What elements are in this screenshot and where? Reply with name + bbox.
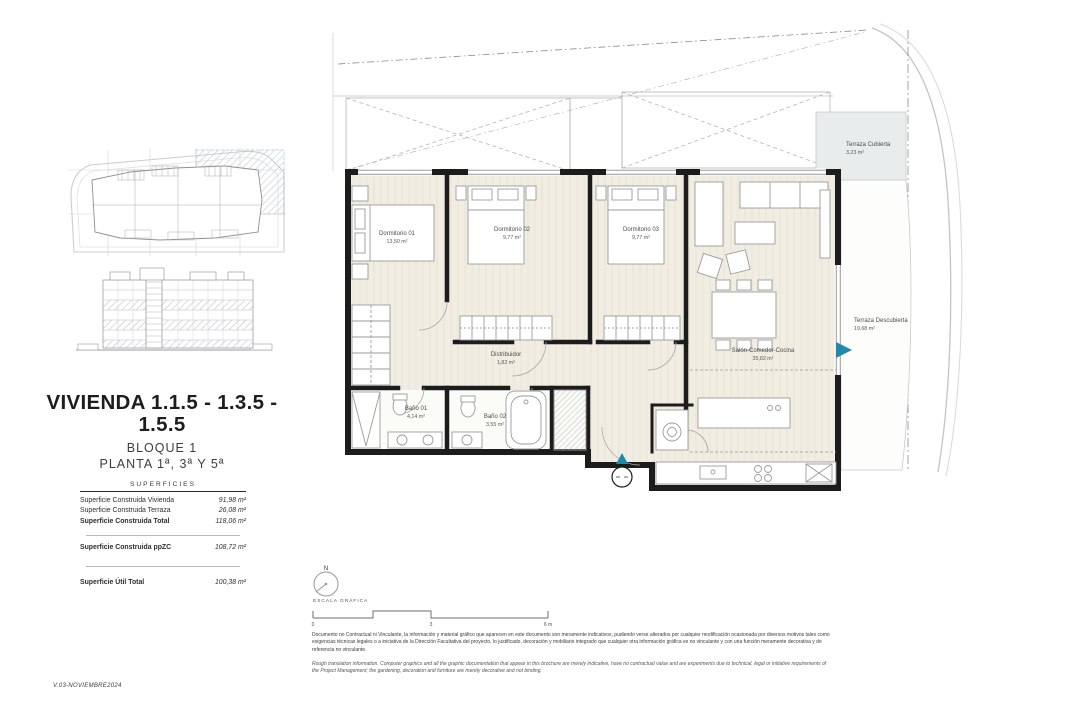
room-area-distribuidor: 1,82 m² bbox=[497, 360, 515, 366]
plan-sheet: VIVIENDA 1.1.5 - 1.3.5 - 1.5.5 BLOQUE 1 … bbox=[0, 0, 1080, 720]
floors-subtitle: PLANTA 1ª, 3ª Y 5ª bbox=[46, 457, 278, 473]
room-area-bano-01: 4,14 m² bbox=[407, 414, 425, 420]
row-label: Superficie Construida Total bbox=[80, 517, 169, 527]
room-area-dormitorio-02: 9,77 m² bbox=[503, 235, 521, 241]
room-area-bano-02: 3,55 m² bbox=[486, 422, 504, 428]
version-code: V.03-NOVIEMBRE2024 bbox=[53, 683, 122, 689]
legal-disclaimer: Documento no Contractual ni Vinculante, … bbox=[312, 632, 834, 675]
row-value: 100,38 m² bbox=[215, 578, 246, 588]
block-subtitle: BLOQUE 1 bbox=[46, 441, 278, 457]
scale-tick-6m: 6 m bbox=[544, 622, 552, 628]
floor-plan bbox=[348, 169, 852, 489]
row-value: 91,98 m² bbox=[219, 496, 246, 506]
room-label-dormitorio-01: Dormitorio 01 bbox=[379, 231, 416, 237]
page-title: VIVIENDA 1.1.5 - 1.3.5 - 1.5.5 bbox=[46, 392, 278, 436]
room-area-salon-comedor-cocina: 35,82 m² bbox=[753, 356, 774, 362]
room-label-bano-01: Baño 01 bbox=[405, 406, 428, 412]
row-label: Superficie Construida ppZC bbox=[80, 543, 171, 553]
table-separator bbox=[86, 566, 240, 567]
scale-tick-0: 0 bbox=[312, 622, 315, 628]
disclaimer-english: Rough translation information. Computer … bbox=[312, 661, 834, 676]
drawing-canvas: Dormitorio 01 13,50 m² Dormitorio 02 9,7… bbox=[0, 0, 1080, 720]
north-label: N bbox=[324, 565, 329, 572]
table-row: Superficie Construida Vivienda 91,98 m² bbox=[80, 496, 246, 506]
room-label-distribuidor: Distribuidor bbox=[491, 352, 521, 358]
room-label-salon-comedor-cocina: Salón-Comedor-Cocina bbox=[732, 348, 795, 354]
disclaimer-spanish: Documento no Contractual ni Vinculante, … bbox=[312, 632, 834, 654]
table-row: Superficie Útil Total 100,38 m² bbox=[80, 578, 246, 588]
title-block: VIVIENDA 1.1.5 - 1.3.5 - 1.5.5 BLOQUE 1 … bbox=[46, 392, 278, 473]
upper-floor-overhang bbox=[346, 92, 830, 171]
row-label: Superficie Útil Total bbox=[80, 578, 144, 588]
room-area-terraza-descubierta: 19,68 m² bbox=[854, 326, 875, 332]
room-label-dormitorio-02: Dormitorio 02 bbox=[494, 227, 531, 233]
superficies-heading: SUPERFICIES bbox=[80, 481, 246, 488]
room-area-dormitorio-01: 13,50 m² bbox=[387, 239, 408, 245]
room-label-terraza-descubierta: Terraza Descubierta bbox=[854, 318, 908, 324]
building-elevation bbox=[76, 268, 272, 350]
scale-tick-3: 3 bbox=[430, 622, 433, 628]
scale-bar-label: ESCALA GRÁFICA bbox=[313, 597, 368, 604]
terrace-glass-door bbox=[835, 265, 842, 375]
superficies-table: SUPERFICIES Superficie Construida Vivien… bbox=[80, 481, 246, 589]
room-label-terraza-cubierta: Terraza Cubierta bbox=[846, 142, 891, 148]
room-area-terraza-cubierta: 3,23 m² bbox=[846, 150, 864, 156]
room-area-dormitorio-03: 9,77 m² bbox=[632, 235, 650, 241]
scale-bar: ESCALA GRÁFICA 0 3 6 m bbox=[312, 597, 553, 628]
table-rule bbox=[80, 491, 246, 492]
row-value: 118,06 m² bbox=[215, 517, 246, 527]
row-value: 108,72 m² bbox=[215, 543, 246, 553]
north-compass: N bbox=[314, 565, 338, 596]
table-row: Superficie Construida Total 118,06 m² bbox=[80, 517, 246, 527]
site-plan-thumbnail bbox=[68, 148, 286, 256]
terraza-descubierta-area bbox=[841, 180, 911, 470]
room-label-bano-02: Baño 02 bbox=[484, 414, 507, 420]
row-label: Superficie Construida Terraza bbox=[80, 506, 171, 516]
table-row: Superficie Construida ppZC 108,72 m² bbox=[80, 543, 246, 553]
row-label: Superficie Construida Vivienda bbox=[80, 496, 174, 506]
table-separator bbox=[86, 535, 240, 536]
room-label-dormitorio-03: Dormitorio 03 bbox=[623, 227, 660, 233]
table-row: Superficie Construida Terraza 26,08 m² bbox=[80, 506, 246, 516]
row-value: 26,08 m² bbox=[219, 506, 246, 516]
